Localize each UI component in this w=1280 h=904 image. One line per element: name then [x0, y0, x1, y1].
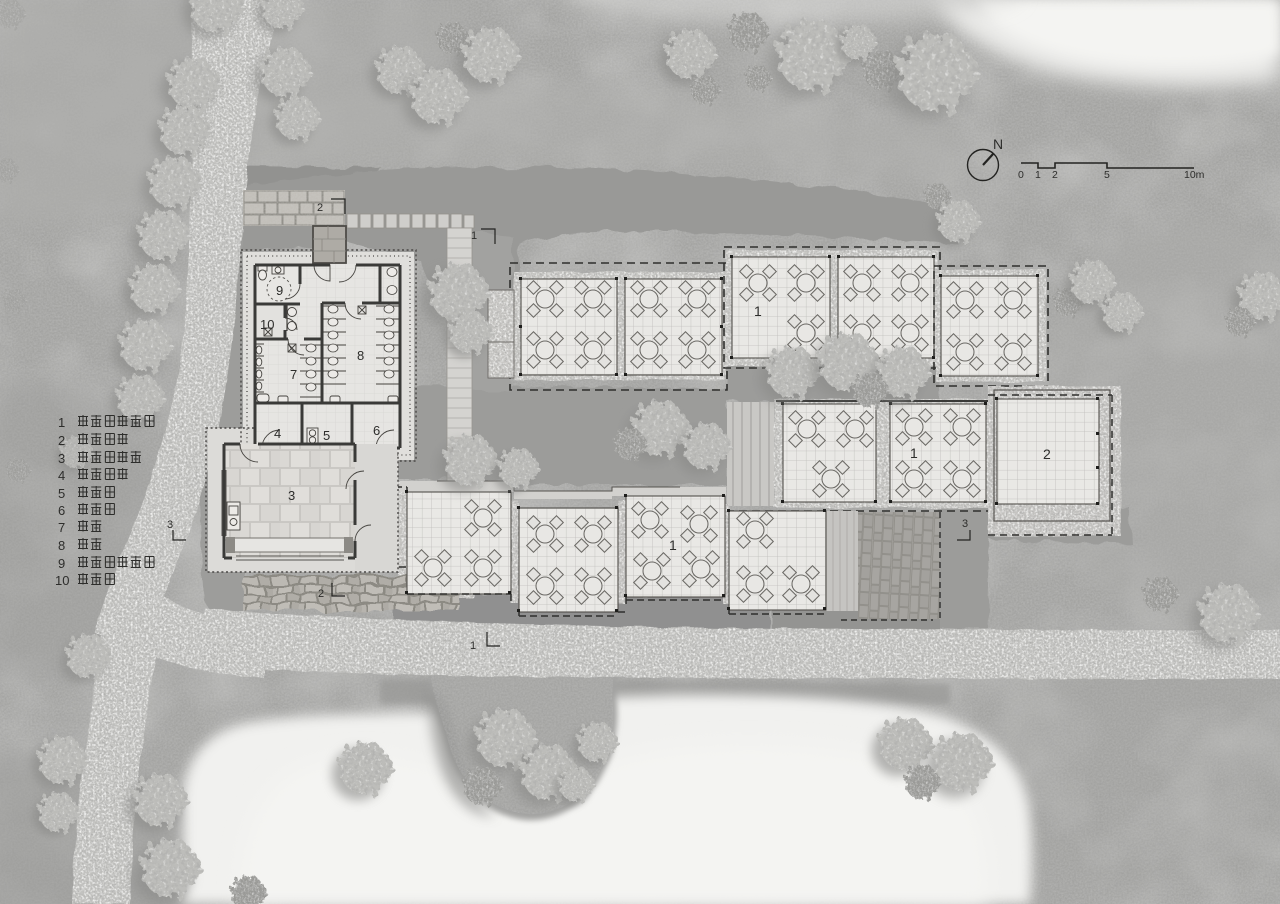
svg-text:9: 9 — [276, 283, 283, 298]
svg-text:9: 9 — [58, 556, 65, 571]
svg-text:5: 5 — [1104, 169, 1110, 181]
svg-text:3: 3 — [167, 519, 173, 531]
svg-text:2: 2 — [58, 433, 65, 448]
svg-text:2: 2 — [1043, 446, 1051, 462]
svg-text:8: 8 — [58, 538, 65, 553]
svg-text:10: 10 — [260, 317, 274, 332]
svg-text:5: 5 — [58, 486, 65, 501]
svg-text:1: 1 — [470, 640, 476, 652]
svg-text:3: 3 — [962, 518, 968, 530]
svg-text:2: 2 — [317, 202, 323, 214]
svg-text:N: N — [993, 136, 1003, 152]
svg-text:1: 1 — [58, 415, 65, 430]
svg-text:10: 10 — [55, 573, 69, 588]
svg-text:8: 8 — [357, 348, 364, 363]
svg-text:4: 4 — [274, 426, 281, 441]
svg-text:1: 1 — [1035, 169, 1041, 181]
svg-text:4: 4 — [58, 468, 65, 483]
svg-text:7: 7 — [58, 520, 65, 535]
svg-text:5: 5 — [323, 428, 330, 443]
svg-text:7: 7 — [290, 367, 297, 382]
svg-text:2: 2 — [318, 588, 324, 600]
svg-text:1: 1 — [471, 230, 477, 242]
svg-text:1: 1 — [910, 445, 918, 461]
svg-text:1: 1 — [754, 303, 762, 319]
svg-text:0: 0 — [1018, 169, 1024, 181]
svg-text:3: 3 — [288, 488, 295, 503]
svg-text:10m: 10m — [1184, 169, 1205, 181]
svg-text:6: 6 — [373, 423, 380, 438]
svg-text:2: 2 — [1052, 169, 1058, 181]
svg-text:6: 6 — [58, 503, 65, 518]
svg-text:1: 1 — [669, 537, 677, 553]
svg-text:3: 3 — [58, 451, 65, 466]
